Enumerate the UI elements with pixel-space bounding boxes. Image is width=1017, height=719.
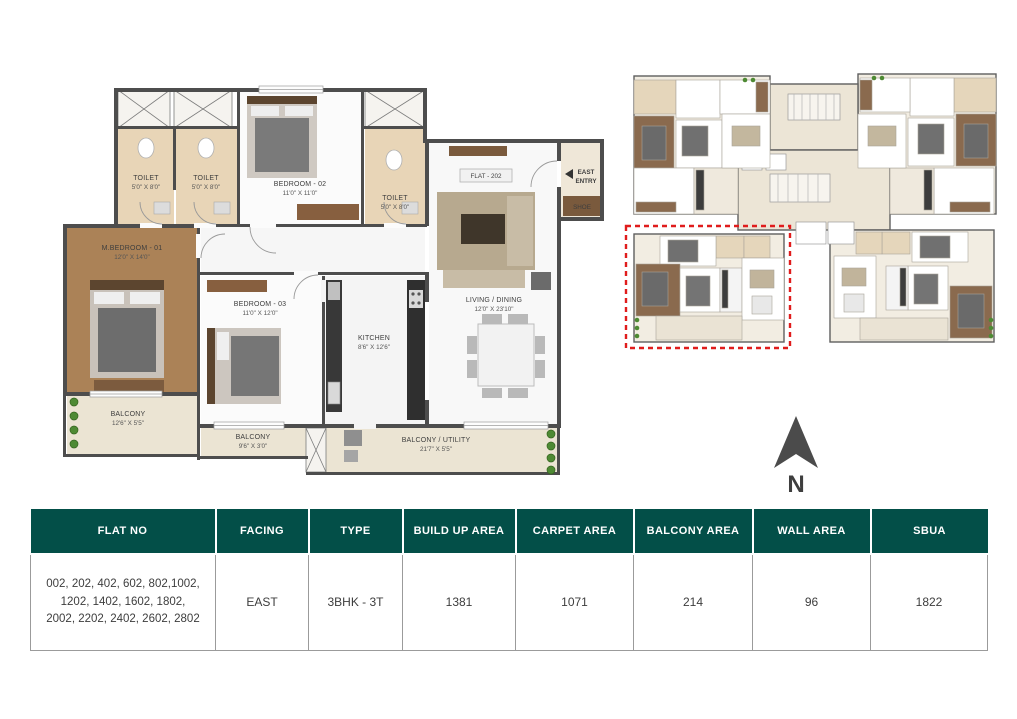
- room-dim: 8'6" X 12'6": [358, 344, 390, 351]
- col-header-build-up-area: BUILD UP AREA: [403, 509, 516, 554]
- room-label: KITCHEN: [358, 335, 390, 342]
- room-dim: 12'6" X 5'5": [112, 420, 144, 427]
- key-plan: [620, 56, 1008, 360]
- table-row: 002, 202, 402, 602, 802,1002, 1202, 1402…: [31, 554, 988, 651]
- cell-sbua: 1822: [871, 554, 988, 651]
- flat-number-label: FLAT - 202: [471, 173, 502, 180]
- cell-balcony-area: 214: [634, 554, 753, 651]
- room-dim: 9'6" X 3'0": [239, 443, 268, 450]
- room-label: BALCONY / UTILITY: [402, 437, 471, 444]
- room-dim: 5'0" X 8'0": [192, 184, 221, 191]
- cell-flat-no: 002, 202, 402, 602, 802,1002, 1202, 1402…: [31, 554, 216, 651]
- north-arrow: N: [766, 412, 826, 496]
- room-dim: 21'7" X 5'5": [420, 446, 452, 453]
- col-header-carpet-area: CARPET AREA: [516, 509, 634, 554]
- room-dim: 12'0" X 23'10": [474, 306, 513, 313]
- cell-facing: EAST: [216, 554, 309, 651]
- cell-build-up-area: 1381: [403, 554, 516, 651]
- floor-plan: TOILET 5'0" X 8'0" TOILET 5'0" X 8'0" BE…: [54, 84, 606, 478]
- col-header-wall-area: WALL AREA: [753, 509, 871, 554]
- room-label: TOILET: [382, 195, 408, 202]
- col-header-type: TYPE: [309, 509, 403, 554]
- cell-carpet-area: 1071: [516, 554, 634, 651]
- room-dim: 12'0" X 14'0": [114, 254, 150, 261]
- col-header-balcony-area: BALCONY AREA: [634, 509, 753, 554]
- cell-wall-area: 96: [753, 554, 871, 651]
- col-header-sbua: SBUA: [871, 509, 988, 554]
- entry-label-line1: EAST: [578, 169, 595, 176]
- room-dim: 11'0" X 12'0": [242, 310, 277, 317]
- room-dim: 5'0" X 8'0": [132, 184, 161, 191]
- area-summary-table: FLAT NO FACING TYPE BUILD UP AREA CARPET…: [30, 509, 988, 651]
- page: TOILET 5'0" X 8'0" TOILET 5'0" X 8'0" BE…: [0, 0, 1017, 719]
- north-arrow-icon: [774, 416, 818, 468]
- col-header-flat-no: FLAT NO: [31, 509, 216, 554]
- room-label: TOILET: [133, 175, 159, 182]
- room-dim: 5'0" X 8'0": [381, 204, 410, 211]
- room-label: BALCONY: [236, 434, 271, 441]
- room-label: BEDROOM - 03: [234, 301, 287, 308]
- room-label: M.BEDROOM - 01: [102, 245, 163, 252]
- room-label: BALCONY: [111, 411, 146, 418]
- cell-type: 3BHK - 3T: [309, 554, 403, 651]
- entry-label-line2: ENTRY: [575, 178, 597, 185]
- table-header-row: FLAT NO FACING TYPE BUILD UP AREA CARPET…: [31, 509, 988, 554]
- room-label: BEDROOM - 02: [274, 181, 327, 188]
- shoe-label: SHOE: [573, 204, 591, 211]
- col-header-facing: FACING: [216, 509, 309, 554]
- north-label: N: [787, 471, 804, 496]
- room-label: TOILET: [193, 175, 219, 182]
- room-label: LIVING / DINING: [466, 297, 522, 304]
- room-dim: 11'0" X 11'0": [283, 190, 318, 197]
